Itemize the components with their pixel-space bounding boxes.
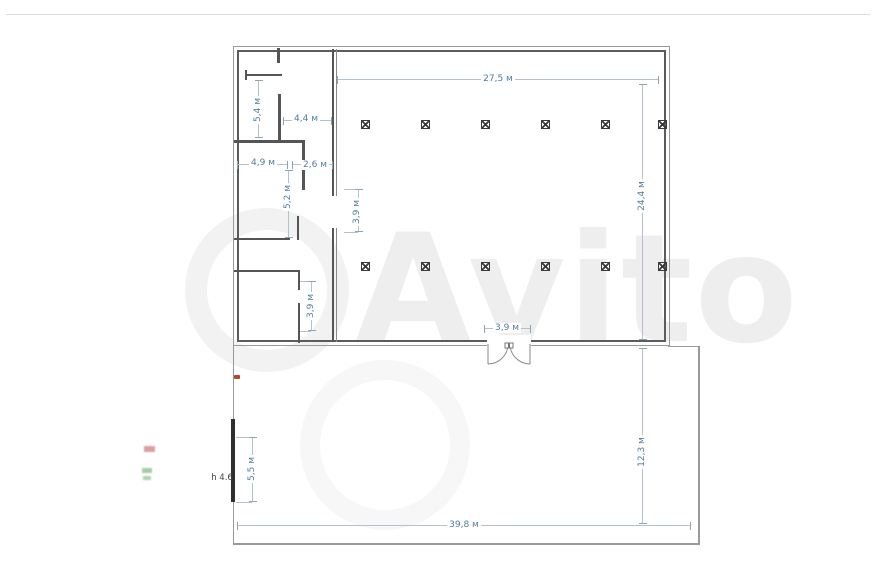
column-icon <box>481 120 490 129</box>
dimension-connector <box>236 502 252 503</box>
dimension-label: 3,9 м <box>493 323 521 333</box>
dimension-label: 27,5 м <box>481 74 515 84</box>
dimension-label: 2,6 м <box>301 160 329 170</box>
green-annotation-mark <box>143 476 151 480</box>
dimension-label: 5,2 м <box>283 183 293 211</box>
column-icon <box>361 262 370 271</box>
yard-wall-bottom <box>233 543 700 545</box>
dimension-label: 5,5 м <box>247 455 257 483</box>
building-outline-inner <box>237 50 666 342</box>
column-icon <box>601 262 610 271</box>
wall <box>278 94 281 142</box>
wall <box>245 70 247 80</box>
double-door-icon <box>485 341 533 369</box>
column-icon <box>658 120 667 129</box>
watermark-circle <box>300 360 470 530</box>
gate-height-note: h 4.6 <box>211 473 233 483</box>
dimension-label: 3,9 м <box>306 292 316 320</box>
partition-wall <box>332 228 337 342</box>
wall <box>234 238 290 240</box>
dimension-label: 5,4 м <box>253 96 263 124</box>
wall <box>277 48 280 63</box>
dimension-connector <box>300 331 311 332</box>
dimension-label: 3,9 м <box>352 198 362 226</box>
partition-wall <box>332 49 337 196</box>
dimension-connector <box>344 232 358 233</box>
dimension-label: 4,9 м <box>249 158 277 168</box>
wall <box>234 140 305 143</box>
column-icon <box>361 120 370 129</box>
yard-wall-top <box>668 346 699 347</box>
column-icon <box>541 262 550 271</box>
page-divider <box>6 14 870 15</box>
yard-wall-right <box>698 346 700 545</box>
wall <box>297 216 299 240</box>
column-icon <box>481 262 490 271</box>
wall <box>246 74 282 76</box>
yard-wall-left <box>233 502 234 545</box>
wall <box>298 270 300 290</box>
column-icon <box>421 120 430 129</box>
wall <box>298 303 300 343</box>
floor-plan-image: Avito <box>0 0 876 579</box>
column-icon <box>541 120 550 129</box>
red-dot-marker <box>234 375 240 379</box>
column-icon <box>658 262 667 271</box>
dimension-label: 4,4 м <box>292 114 320 124</box>
dimension-label: 39,8 м <box>447 520 481 530</box>
building-outline <box>233 46 670 346</box>
dimension-label: 24,4 м <box>637 179 647 213</box>
red-annotation-mark <box>144 446 155 452</box>
wall <box>234 270 300 272</box>
dimension-label: 12,3 м <box>637 435 647 469</box>
green-annotation-mark <box>142 468 152 473</box>
column-icon <box>421 262 430 271</box>
yard-wall-left <box>233 346 234 419</box>
gate-wall <box>231 419 235 502</box>
column-icon <box>601 120 610 129</box>
